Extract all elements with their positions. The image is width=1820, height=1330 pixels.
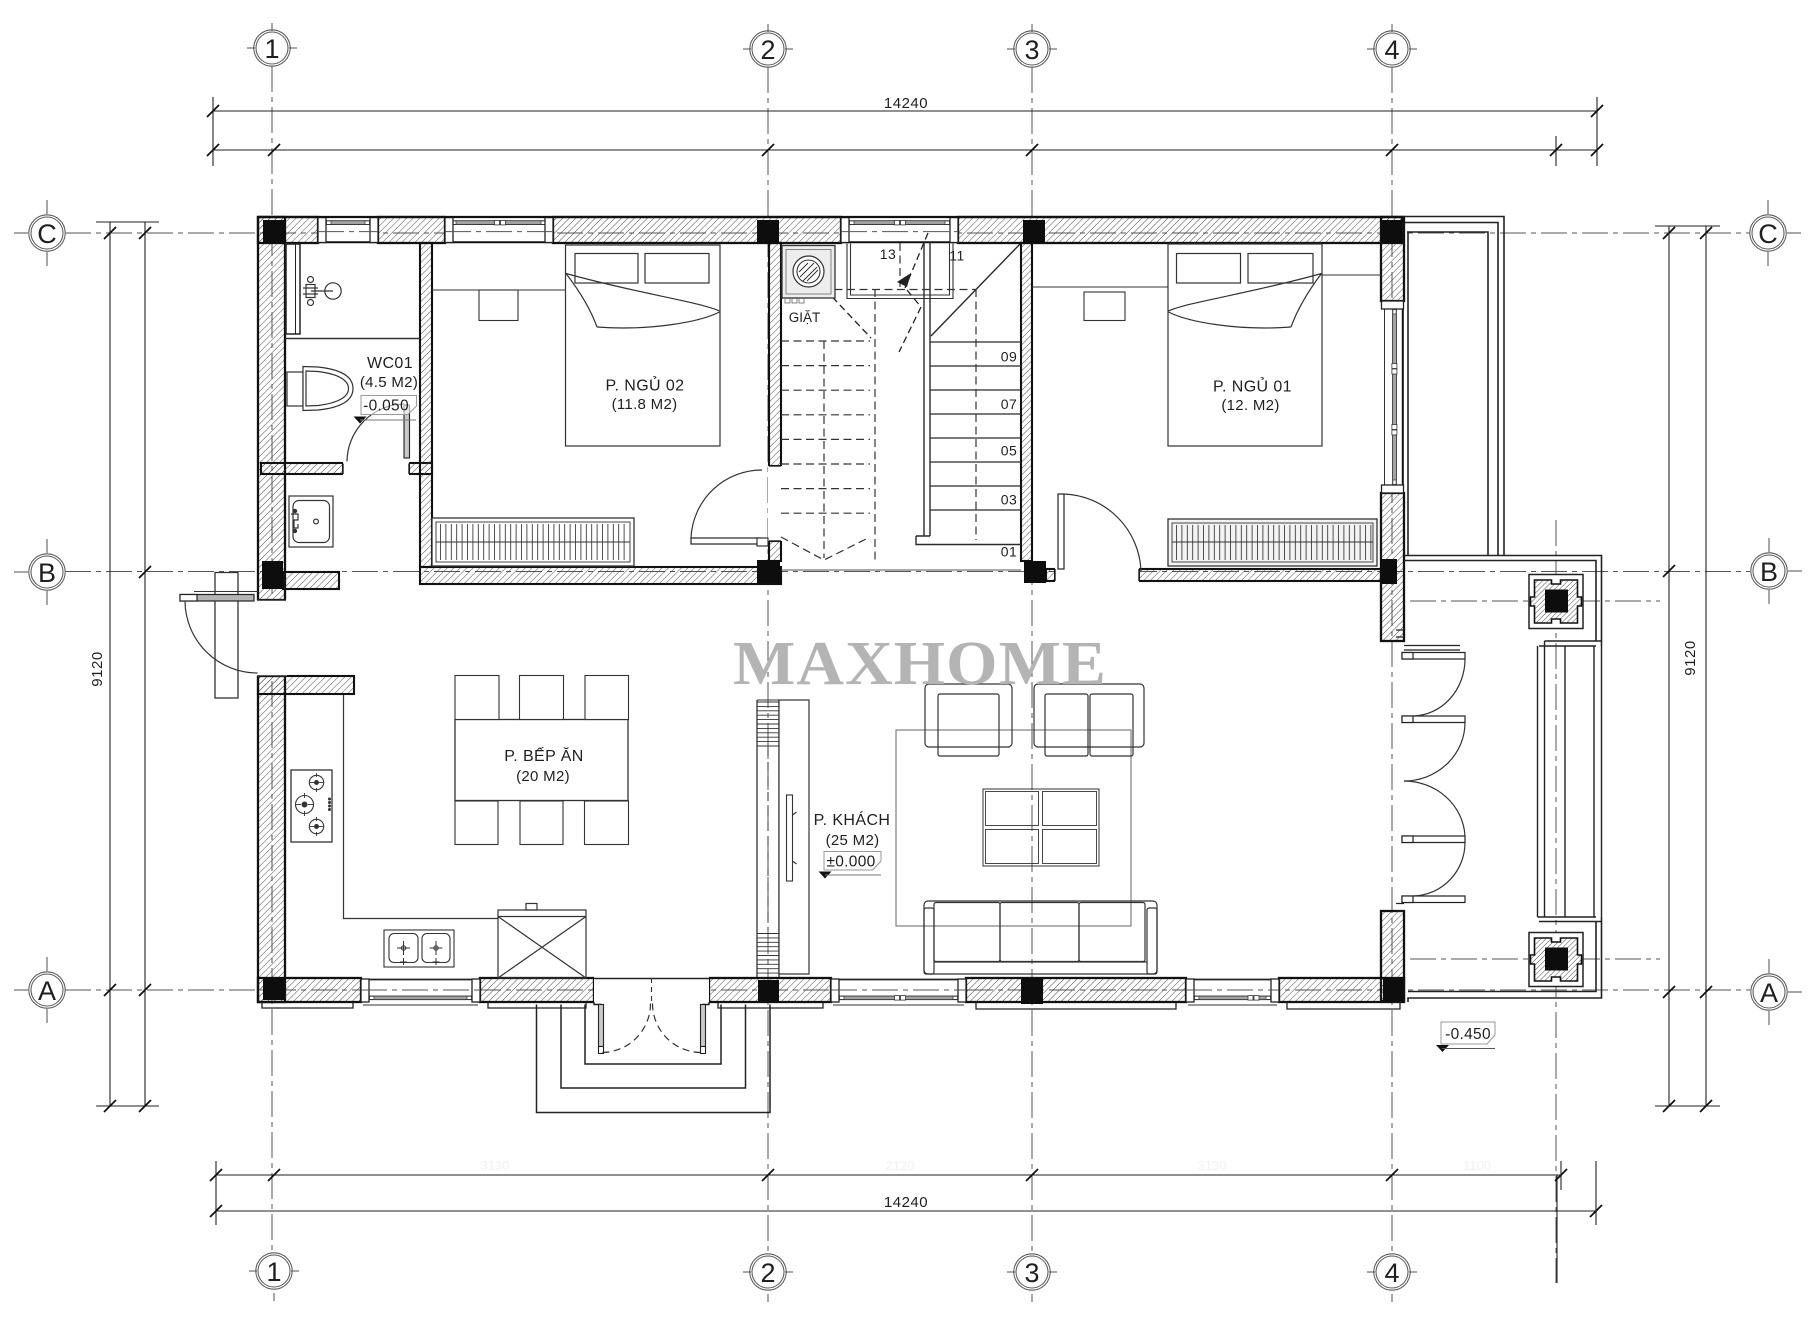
svg-text:A: A: [38, 976, 56, 1006]
svg-text:3: 3: [1024, 1258, 1039, 1288]
svg-text:(4.5 M2): (4.5 M2): [360, 374, 418, 391]
svg-text:4: 4: [1384, 35, 1399, 65]
svg-text:-0.450: -0.450: [1445, 1026, 1491, 1043]
svg-text:MAXHOME: MAXHOME: [733, 630, 1107, 698]
svg-text:(11.8 M2): (11.8 M2): [612, 396, 678, 413]
svg-text:2120: 2120: [886, 1158, 915, 1173]
svg-text:9120: 9120: [1682, 640, 1699, 675]
svg-text:P. KHÁCH: P. KHÁCH: [814, 810, 891, 829]
svg-text:3: 3: [1024, 35, 1039, 65]
svg-text:2: 2: [760, 35, 775, 65]
svg-text:(25 M2): (25 M2): [826, 832, 880, 849]
svg-text:09: 09: [1001, 349, 1018, 365]
svg-text:2: 2: [760, 1258, 775, 1288]
svg-text:C: C: [37, 219, 57, 249]
svg-text:07: 07: [1001, 396, 1018, 412]
svg-text:3130: 3130: [481, 1158, 510, 1173]
svg-text:11: 11: [949, 248, 965, 264]
svg-text:1: 1: [266, 1257, 281, 1287]
svg-text:(20 M2): (20 M2): [516, 768, 570, 785]
svg-text:3130: 3130: [1198, 1158, 1227, 1173]
svg-text:P. NGỦ 02: P. NGỦ 02: [606, 376, 685, 395]
svg-text:B: B: [1760, 557, 1778, 587]
svg-text:-0.050: -0.050: [363, 398, 409, 415]
svg-text:±0.000: ±0.000: [826, 854, 875, 871]
svg-text:03: 03: [1001, 492, 1018, 508]
svg-text:1: 1: [264, 34, 279, 64]
svg-text:4: 4: [1384, 1258, 1399, 1288]
svg-text:P. BẾP ĂN: P. BẾP ĂN: [504, 746, 584, 765]
svg-text:(12. M2): (12. M2): [1221, 397, 1279, 414]
svg-text:13: 13: [880, 246, 897, 262]
svg-text:05: 05: [1001, 443, 1018, 459]
svg-text:01: 01: [1001, 544, 1018, 560]
svg-text:14240: 14240: [884, 1194, 928, 1211]
svg-text:P. NGỦ 01: P. NGỦ 01: [1213, 377, 1292, 396]
svg-text:9120: 9120: [89, 651, 106, 686]
svg-text:C: C: [1758, 219, 1778, 249]
svg-text:WC01: WC01: [367, 355, 413, 372]
svg-text:GIẶT: GIẶT: [789, 310, 821, 325]
svg-text:14240: 14240: [884, 95, 928, 112]
svg-text:A: A: [1760, 978, 1778, 1008]
svg-text:B: B: [38, 558, 56, 588]
svg-text:1100: 1100: [1463, 1158, 1491, 1173]
